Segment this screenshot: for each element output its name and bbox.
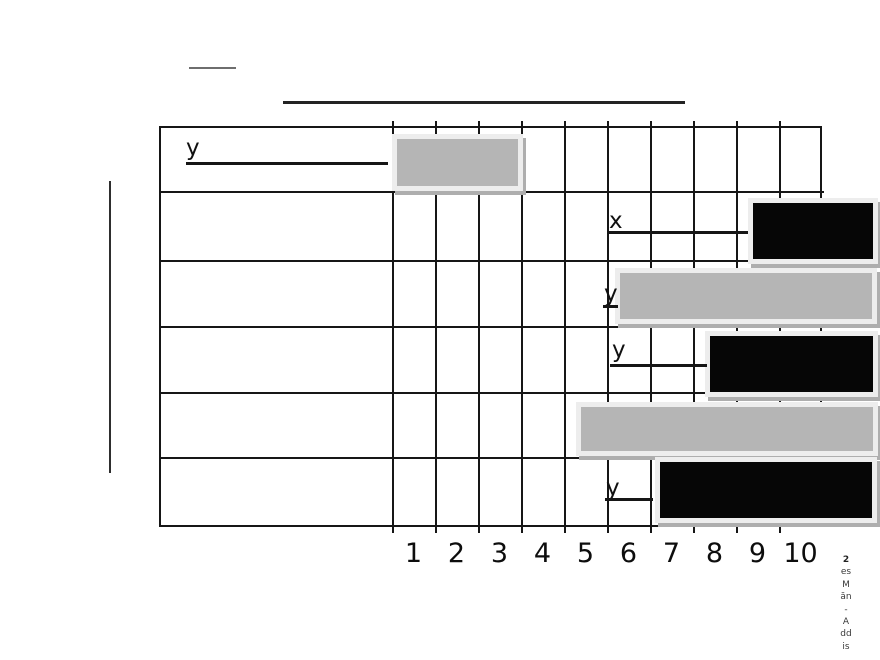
bar-row-4[interactable] [705,331,878,397]
bar-row-1[interactable] [392,134,523,191]
caption-line-8: is [833,641,859,653]
row-divider-1 [159,191,824,193]
answer-underline-row-2 [608,231,748,234]
x-axis-tick-6: 6 [611,538,647,569]
bar-fill-row-3 [620,273,872,319]
y-axis-label-line [109,181,111,473]
bar-row-3[interactable] [615,268,877,324]
title-blank-line [283,101,685,104]
x-axis-tick-10: 10 [783,538,819,569]
x-axis-tick-9: 9 [740,538,776,569]
answer-underline-row-6 [605,498,653,501]
x-axis-tick-2: 2 [439,538,475,569]
bar-row-6[interactable] [655,457,877,523]
x-axis-tick-1: 1 [396,538,432,569]
bar-fill-row-6 [660,462,872,518]
variable-label-row-1: y [186,136,200,161]
caption-line-6: A [833,616,859,628]
worksheet-canvas: yxyyy 12345678910 2esMăn-Addis [0,0,880,660]
x-axis-tick-8: 8 [697,538,733,569]
caption-line-2: es [833,566,859,578]
row-divider-2 [159,260,824,262]
variable-label-row-4: y [612,338,626,363]
answer-underline-row-3 [603,305,618,308]
x-axis-tick-5: 5 [568,538,604,569]
bar-row-2[interactable] [748,198,878,264]
x-axis-tick-7: 7 [654,538,690,569]
caption-line-5: - [833,604,859,616]
caption-line-1: 2 [833,554,859,566]
x-axis-tick-3: 3 [482,538,518,569]
row-divider-3 [159,326,824,328]
caption-text-block: 2esMăn-Addis [833,554,859,653]
x-axis-tick-4: 4 [525,538,561,569]
bar-fill-row-2 [753,203,873,259]
variable-label-row-3: y [604,282,618,307]
name-blank-line [189,67,236,69]
caption-line-7: dd [833,628,859,640]
bar-row-5[interactable] [576,402,878,456]
answer-underline-row-1 [186,162,388,165]
bar-fill-row-5 [581,407,873,451]
caption-line-3: M [833,579,859,591]
caption-line-4: ăn [833,591,859,603]
answer-underline-row-4 [610,364,707,367]
bar-fill-row-4 [710,336,873,392]
bar-fill-row-1 [397,139,518,186]
